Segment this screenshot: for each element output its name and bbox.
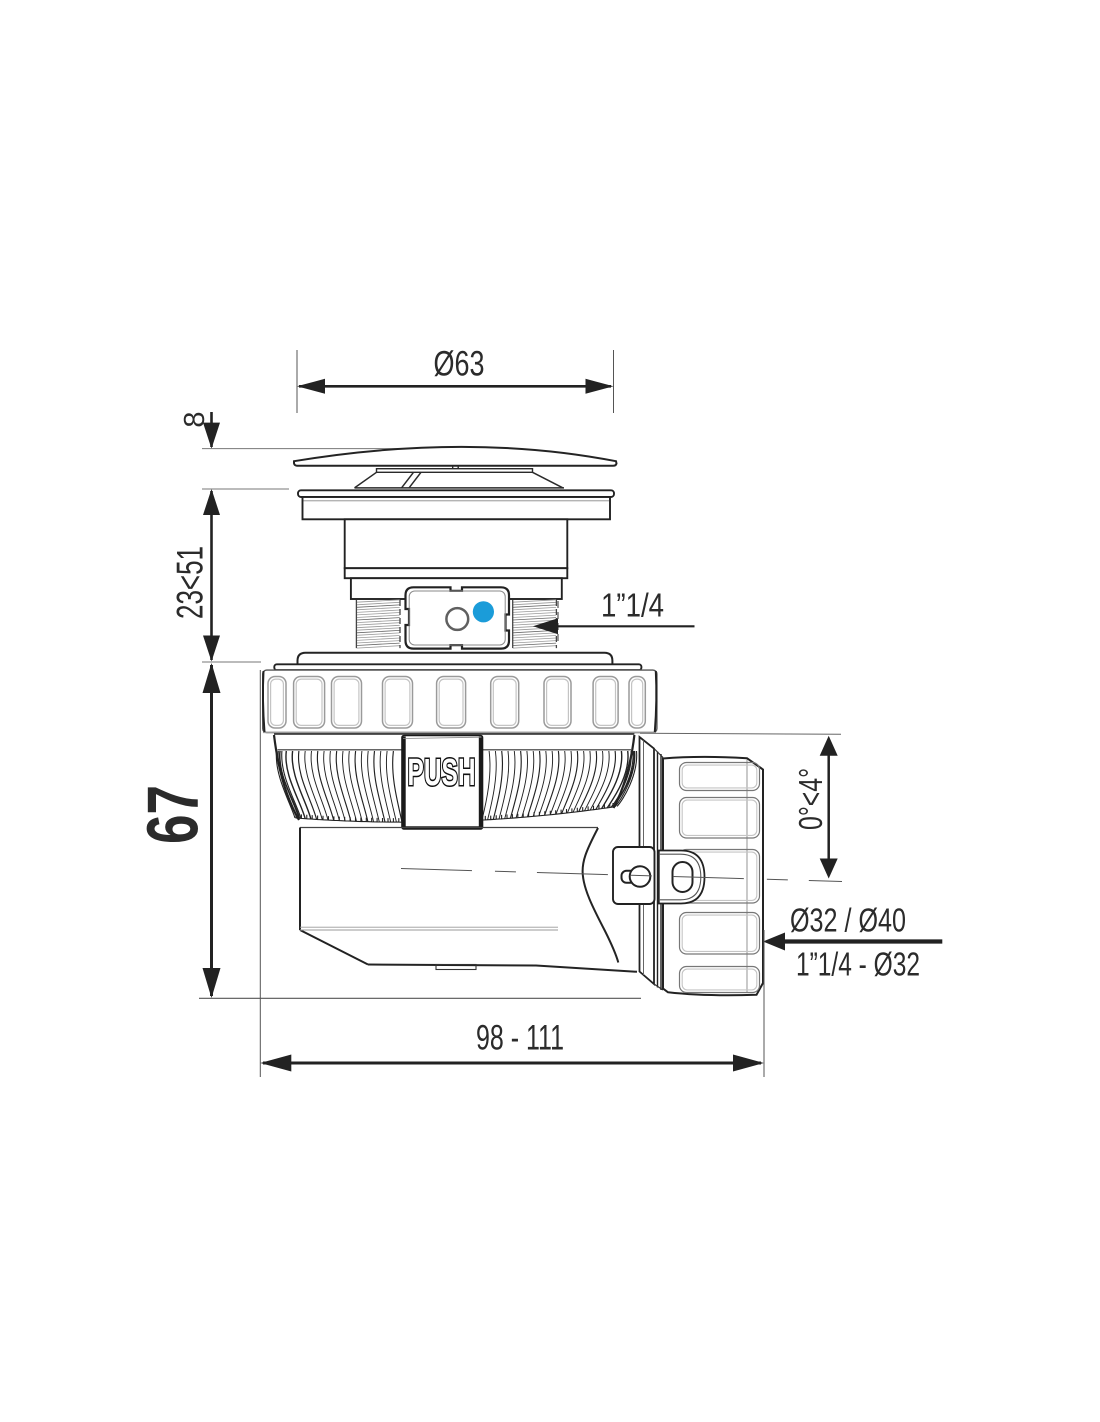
svg-text:67: 67 (134, 785, 214, 844)
svg-text:Ø63: Ø63 (434, 345, 485, 384)
svg-text:1”1/4 - Ø32: 1”1/4 - Ø32 (796, 946, 920, 983)
svg-text:98 - 111: 98 - 111 (476, 1019, 564, 1058)
svg-text:23<51: 23<51 (170, 546, 211, 619)
svg-text:0°<4°: 0°<4° (792, 768, 829, 830)
svg-text:PUSH: PUSH (408, 752, 476, 794)
svg-text:1”1/4: 1”1/4 (601, 587, 664, 624)
svg-text:Ø32 / Ø40: Ø32 / Ø40 (790, 902, 906, 939)
